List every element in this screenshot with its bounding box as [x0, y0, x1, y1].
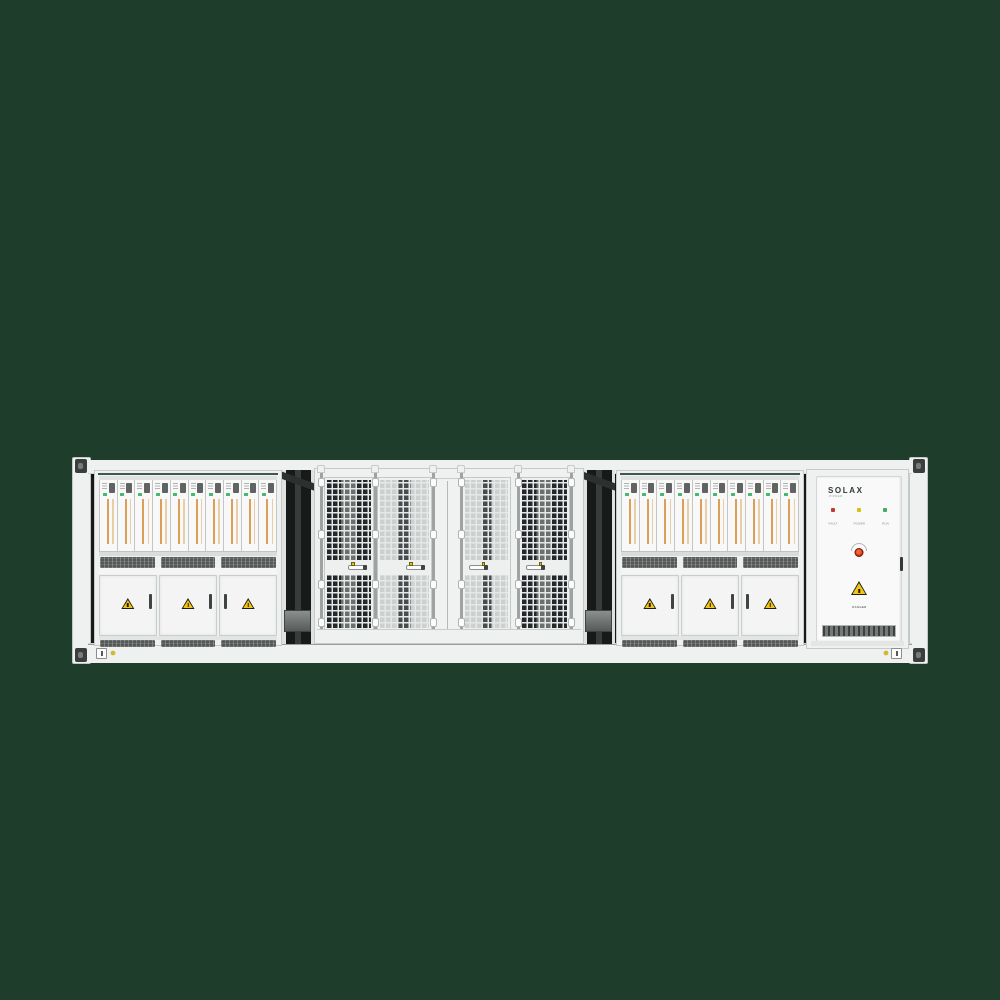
module-rack-rail — [99, 551, 277, 556]
hinge-lug — [317, 465, 325, 473]
corner-casting-icon — [75, 648, 87, 662]
mesh-grille — [380, 575, 429, 628]
module-green-sticker — [173, 493, 177, 496]
open-bay-right — [583, 470, 615, 644]
battery-module — [746, 480, 764, 551]
warning-icon — [121, 598, 134, 609]
module-rack-rail — [621, 551, 799, 556]
door-handle — [209, 594, 212, 609]
module-busbar-stripe — [148, 499, 150, 544]
module-busbar-stripe — [634, 499, 636, 544]
module-label-text — [624, 483, 629, 489]
battery-module — [189, 480, 207, 551]
module-busbar-stripe — [788, 499, 790, 544]
door-handle — [671, 594, 674, 609]
vent-segment — [221, 640, 276, 647]
vent-segment — [221, 557, 276, 568]
module-busbar-stripe — [112, 499, 114, 544]
mesh-cage-bay — [314, 468, 584, 644]
warning-bolt — [649, 603, 651, 608]
hinge-tab — [515, 478, 523, 487]
hinge-tab — [372, 530, 380, 539]
emergency-stop — [849, 543, 869, 561]
battery-module — [153, 480, 171, 551]
vent-segment — [683, 557, 738, 568]
module-busbar-stripe — [647, 499, 649, 544]
door-latch — [348, 565, 367, 570]
module-green-sticker — [138, 493, 142, 496]
battery-module — [781, 480, 799, 551]
warning-bolt — [127, 603, 129, 608]
warning-icon — [643, 598, 656, 609]
high-voltage-warning-icon — [851, 581, 867, 595]
module-busbar-stripe — [201, 499, 203, 544]
vent-segment — [622, 640, 677, 647]
module-label-text — [208, 483, 213, 489]
mesh-door — [378, 478, 431, 632]
warning-bolt — [709, 603, 711, 608]
battery-module — [135, 480, 153, 551]
pcs-cabinet-left: PCS Distribution Cabinet — [94, 470, 282, 646]
vent-grille — [622, 640, 798, 647]
warning-bolt — [769, 603, 771, 608]
mesh-grille — [380, 480, 429, 560]
hinge-tab — [372, 478, 380, 487]
module-busbar-stripe — [218, 499, 220, 544]
cabinet-door — [621, 575, 679, 636]
hinge-tab — [515, 618, 523, 627]
module-label-text — [261, 483, 266, 489]
module-busbar-stripe — [771, 499, 773, 544]
hinge-tab — [318, 618, 326, 627]
module-display — [109, 483, 115, 493]
cabinet-door — [681, 575, 739, 636]
hinge-tab — [458, 580, 466, 589]
module-label-text — [783, 483, 788, 489]
scene-background: PCS Distribution Cabinet PCS Distributio… — [0, 0, 1000, 1000]
busbar-block — [284, 610, 311, 632]
cabinet-door — [99, 575, 157, 636]
busbar-block — [585, 610, 612, 632]
module-green-sticker — [678, 493, 682, 496]
estop-button-icon — [855, 548, 864, 557]
module-busbar-stripe — [629, 499, 631, 544]
module-display — [197, 483, 203, 493]
module-busbar-stripe — [196, 499, 198, 544]
module-green-sticker — [731, 493, 735, 496]
module-display — [755, 483, 761, 493]
corner-post-left — [72, 457, 91, 664]
battery-module — [171, 480, 189, 551]
vent-grille — [100, 557, 276, 568]
module-label-text — [244, 483, 249, 489]
mesh-grille — [465, 480, 508, 560]
module-busbar-stripe — [740, 499, 742, 544]
indicator-dot — [111, 651, 115, 655]
run-led: RUN — [878, 508, 892, 518]
hinge-lug — [567, 465, 575, 473]
module-label-text — [191, 483, 196, 489]
battery-module — [118, 480, 136, 551]
module-display — [666, 483, 672, 493]
module-green-sticker — [262, 493, 266, 496]
module-display — [268, 483, 274, 493]
module-label-text — [730, 483, 735, 489]
hinge-lug — [429, 465, 437, 473]
module-green-sticker — [156, 493, 160, 496]
power-led: POWER — [852, 508, 866, 518]
control-cabinet-door: SOLAX POWER FAULTPOWERRUN DANGER — [816, 476, 902, 642]
module-green-sticker — [784, 493, 788, 496]
module-busbar-stripe — [125, 499, 127, 544]
hinge-tab — [568, 618, 576, 627]
module-busbar-stripe — [107, 499, 109, 544]
vent-grille — [100, 640, 276, 647]
cabinet-door — [741, 575, 799, 636]
battery-module — [259, 480, 277, 551]
door-latch — [526, 565, 545, 570]
run-led-icon — [883, 508, 887, 512]
vent-grille — [622, 557, 798, 568]
module-green-sticker — [766, 493, 770, 496]
battery-module — [99, 480, 118, 551]
center-panel — [431, 478, 462, 632]
module-busbar-stripe — [776, 499, 778, 544]
door-handle — [149, 594, 152, 609]
warning-bolt — [187, 603, 189, 608]
pcs-cabinet-right: PCS Distribution Cabinet — [616, 470, 804, 646]
module-green-sticker — [191, 493, 195, 496]
module-busbar-stripe — [753, 499, 755, 544]
module-busbar-stripe — [236, 499, 238, 544]
door-mid-band — [380, 560, 429, 575]
battery-module — [640, 480, 658, 551]
brand-sub-logo: POWER — [829, 495, 843, 498]
module-busbar-stripe — [213, 499, 215, 544]
module-green-sticker — [642, 493, 646, 496]
module-label-text — [120, 483, 125, 489]
vent-segment — [743, 557, 798, 568]
module-display — [702, 483, 708, 493]
hinge-tab — [458, 618, 466, 627]
warning-bolt — [247, 603, 249, 608]
module-busbar-stripe — [231, 499, 233, 544]
indicator-dot — [884, 651, 888, 655]
door-handle — [224, 594, 227, 609]
hinge-tab — [318, 478, 326, 487]
battery-module — [728, 480, 746, 551]
module-busbar-stripe — [794, 499, 796, 544]
warning-sticker — [482, 562, 486, 566]
battery-module — [224, 480, 242, 551]
module-display — [233, 483, 239, 493]
battery-module — [206, 480, 224, 551]
module-display — [215, 483, 221, 493]
fault-led-icon — [831, 508, 835, 512]
warning-sticker — [539, 562, 543, 566]
module-green-sticker — [120, 493, 124, 496]
mesh-door — [463, 478, 510, 632]
vent-segment — [743, 640, 798, 647]
battery-module — [242, 480, 260, 551]
hinge-rod — [570, 472, 573, 639]
vent-segment — [100, 557, 155, 568]
module-label-text — [713, 483, 718, 489]
hinge-tab — [458, 530, 466, 539]
module-display — [648, 483, 654, 493]
module-busbar-stripe — [272, 499, 274, 544]
mesh-grille — [327, 480, 371, 560]
module-busbar-stripe — [249, 499, 251, 544]
cabinet-doors — [621, 575, 799, 636]
module-label-text — [137, 483, 142, 489]
roof-gap — [620, 473, 800, 475]
module-display — [180, 483, 186, 493]
module-rack — [621, 480, 799, 551]
module-label-text — [766, 483, 771, 489]
module-label-text — [226, 483, 231, 489]
module-busbar-stripe — [735, 499, 737, 544]
warning-icon — [704, 598, 717, 609]
module-busbar-stripe — [682, 499, 684, 544]
module-label-text — [173, 483, 178, 489]
warning-icon — [242, 598, 255, 609]
battery-module — [621, 480, 640, 551]
cabinet-door — [219, 575, 277, 636]
module-busbar-stripe — [723, 499, 725, 544]
module-green-sticker — [226, 493, 230, 496]
module-label-text — [102, 483, 107, 489]
module-busbar-stripe — [700, 499, 702, 544]
module-green-sticker — [695, 493, 699, 496]
open-bay-left — [282, 470, 314, 644]
door-mid-band — [327, 560, 371, 575]
hinge-tab — [515, 530, 523, 539]
module-busbar-stripe — [165, 499, 167, 544]
module-label-text — [677, 483, 682, 489]
hinge-lug — [514, 465, 522, 473]
warning-sticker — [409, 562, 413, 566]
mesh-door — [520, 478, 569, 632]
hinge-rod — [460, 472, 463, 639]
module-busbar-stripe — [142, 499, 144, 544]
module-display — [162, 483, 168, 493]
warning-icon — [182, 598, 195, 609]
module-busbar-stripe — [183, 499, 185, 544]
module-display — [250, 483, 256, 493]
hinge-tab — [430, 618, 438, 627]
hinge-tab — [318, 530, 326, 539]
module-busbar-stripe — [266, 499, 268, 544]
module-display — [719, 483, 725, 493]
module-busbar-stripe — [705, 499, 707, 544]
module-green-sticker — [103, 493, 107, 496]
cabinet-label-strip: PCS Distribution Cabinet — [621, 568, 799, 574]
module-busbar-stripe — [718, 499, 720, 544]
hinge-tab — [372, 618, 380, 627]
hinge-tab — [568, 530, 576, 539]
vent-segment — [683, 640, 738, 647]
hinge-tab — [458, 478, 466, 487]
hinge-lug — [371, 465, 379, 473]
module-green-sticker — [625, 493, 629, 496]
module-label-text — [748, 483, 753, 489]
door-handle — [746, 594, 749, 609]
roof-gap — [98, 473, 278, 475]
module-green-sticker — [209, 493, 213, 496]
power-led-icon — [857, 508, 861, 512]
control-cabinet-vent — [822, 625, 896, 637]
door-latch — [406, 565, 425, 570]
cabinet-sill — [811, 641, 904, 646]
hinge-rod — [374, 472, 377, 639]
corner-casting-icon — [913, 648, 925, 662]
module-display — [772, 483, 778, 493]
brand-logo: SOLAX — [828, 486, 864, 495]
module-busbar-stripe — [160, 499, 162, 544]
module-busbar-stripe — [178, 499, 180, 544]
vent-segment — [622, 557, 677, 568]
corner-post-right — [909, 457, 928, 664]
module-label-text — [695, 483, 700, 489]
hinge-tab — [568, 478, 576, 487]
module-green-sticker — [244, 493, 248, 496]
fault-led: FAULT — [826, 508, 840, 518]
mesh-door — [325, 478, 373, 632]
door-mid-band — [465, 560, 508, 575]
control-cabinet: SOLAX POWER FAULTPOWERRUN DANGER — [806, 469, 909, 649]
module-label-text — [642, 483, 647, 489]
hinge-rod — [517, 472, 520, 639]
battery-module — [764, 480, 782, 551]
module-busbar-stripe — [254, 499, 256, 544]
led-label: RUN — [879, 513, 892, 518]
panel-seam — [447, 481, 448, 629]
door-handle — [900, 557, 903, 571]
warning-caption: DANGER — [817, 597, 901, 615]
mesh-grille — [522, 480, 567, 560]
battery-module — [675, 480, 693, 551]
module-green-sticker — [748, 493, 752, 496]
module-display — [126, 483, 132, 493]
cabinet-door — [159, 575, 217, 636]
hinge-tab — [568, 580, 576, 589]
module-label-text — [659, 483, 664, 489]
hinge-lug — [457, 465, 465, 473]
mesh-grille — [327, 575, 371, 628]
hinge-tab — [430, 580, 438, 589]
status-led-row: FAULTPOWERRUN — [817, 508, 901, 518]
module-display — [631, 483, 637, 493]
hinge-tab — [430, 530, 438, 539]
hinge-tab — [515, 580, 523, 589]
module-busbar-stripe — [652, 499, 654, 544]
bay-stud — [612, 470, 616, 644]
led-label: FAULT — [824, 513, 842, 518]
cabinet-doors — [99, 575, 277, 636]
door-mid-band — [522, 560, 567, 575]
module-busbar-stripe — [758, 499, 760, 544]
module-green-sticker — [713, 493, 717, 496]
battery-module — [693, 480, 711, 551]
vent-segment — [161, 640, 216, 647]
battery-module — [657, 480, 675, 551]
corner-casting-icon — [913, 459, 925, 473]
led-label: POWER — [848, 513, 871, 518]
module-green-sticker — [660, 493, 664, 496]
module-rack — [99, 480, 277, 551]
module-display — [144, 483, 150, 493]
warning-icon — [764, 598, 777, 609]
hinge-rod — [432, 472, 435, 639]
module-busbar-stripe — [687, 499, 689, 544]
mesh-grille — [465, 575, 508, 628]
hinge-rod — [320, 472, 323, 639]
door-latch — [469, 565, 488, 570]
battery-module — [711, 480, 729, 551]
warning-bolt — [858, 589, 860, 594]
end-connector-box — [891, 648, 902, 659]
module-busbar-stripe — [664, 499, 666, 544]
warning-sticker — [351, 562, 355, 566]
hinge-tab — [430, 478, 438, 487]
door-handle — [731, 594, 734, 609]
mesh-bay-sill — [317, 629, 581, 641]
module-display — [737, 483, 743, 493]
corner-casting-icon — [75, 459, 87, 473]
hinge-tab — [372, 580, 380, 589]
module-display — [684, 483, 690, 493]
vent-segment — [100, 640, 155, 647]
module-busbar-stripe — [130, 499, 132, 544]
hinge-tab — [318, 580, 326, 589]
module-busbar-stripe — [670, 499, 672, 544]
vent-segment — [161, 557, 216, 568]
end-connector-box — [96, 648, 107, 659]
module-label-text — [155, 483, 160, 489]
mesh-grille — [522, 575, 567, 628]
cabinet-label-strip: PCS Distribution Cabinet — [99, 568, 277, 574]
module-display — [790, 483, 796, 493]
